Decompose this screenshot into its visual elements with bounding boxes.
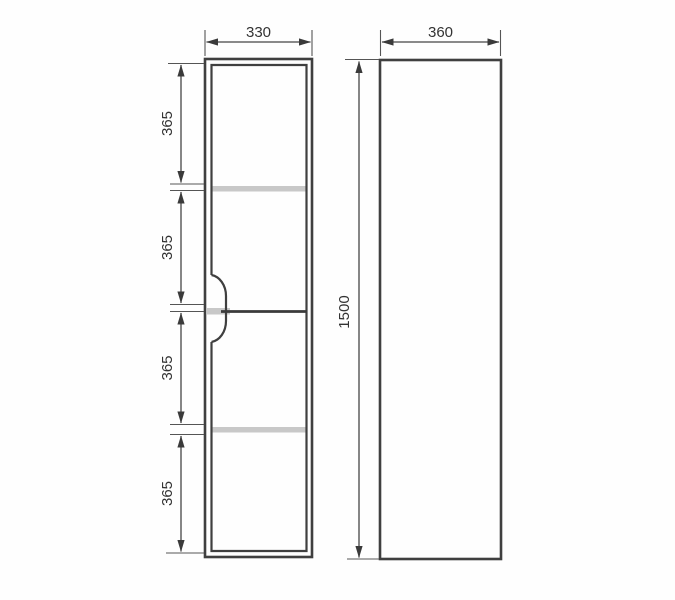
dim-label-segment-4: 365 (159, 481, 176, 506)
dim-label-segment-1: 365 (159, 111, 176, 136)
dim-label-side-width: 360 (428, 24, 453, 41)
dim-label-total-height: 1500 (336, 295, 353, 328)
technical-drawing-canvas: 330 360 365 365 365 365 1500 (0, 0, 675, 600)
dim-label-segment-2: 365 (159, 235, 176, 260)
dim-segment-chain: 365 365 365 365 (159, 64, 204, 554)
dim-total-height: 1500 (336, 60, 379, 560)
side-view-outline (380, 60, 501, 559)
dim-label-segment-3: 365 (159, 355, 176, 380)
cabinet-dimension-drawing: 330 360 365 365 365 365 1500 (0, 0, 675, 600)
dim-side-width: 360 (381, 24, 501, 56)
front-view (205, 59, 312, 557)
dim-front-width: 330 (205, 24, 312, 56)
shelf-top (212, 186, 307, 192)
dim-label-front-width: 330 (246, 24, 271, 41)
side-view (380, 60, 501, 559)
shelf-bottom (212, 427, 307, 433)
